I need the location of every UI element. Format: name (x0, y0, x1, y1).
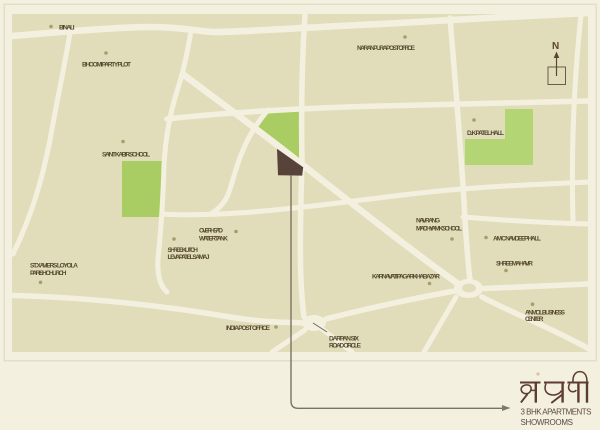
svg-text:OVERHEAD: OVERHEAD (199, 228, 223, 235)
svg-text:ROAD CIRCLE: ROAD CIRCLE (329, 343, 362, 350)
svg-text:NARANPURA POST OFFICE: NARANPURA POST OFFICE (357, 45, 416, 52)
svg-text:ST. XAVIERS LOYOLA: ST. XAVIERS LOYOLA (30, 263, 78, 270)
svg-text:INDIA POST OFFICE: INDIA POST OFFICE (226, 325, 271, 332)
svg-text:BHOOMI PARTY PLOT: BHOOMI PARTY PLOT (82, 62, 131, 69)
svg-text:NAVRANG: NAVRANG (416, 218, 440, 225)
svg-text:PARISH CHURCH: PARISH CHURCH (30, 270, 67, 277)
svg-text:BINALI: BINALI (59, 25, 75, 32)
svg-text:KARNAVATI PAGARKHA BAZAR: KARNAVATI PAGARKHA BAZAR (372, 274, 440, 281)
svg-text:LEVA PATEL SAMAJ: LEVA PATEL SAMAJ (168, 254, 210, 261)
svg-text:DARPAN SIX: DARPAN SIX (329, 336, 360, 343)
svg-text:SAINT KABIR SCHOOL: SAINT KABIR SCHOOL (102, 152, 150, 159)
svg-text:A M C NAVDEEP HALL: A M C NAVDEEP HALL (493, 236, 541, 243)
svg-text:3 BHK APARTMENTS: 3 BHK APARTMENTS (521, 408, 592, 417)
svg-text:MADHYAMIK SCHOOL: MADHYAMIK SCHOOL (416, 226, 462, 233)
svg-text:SHOWROOMS: SHOWROOMS (521, 418, 574, 427)
svg-text:SHREE KUTCH: SHREE KUTCH (168, 247, 199, 254)
svg-text:N: N (552, 41, 559, 52)
svg-text:SHREE MAHAVIR: SHREE MAHAVIR (496, 261, 533, 268)
svg-text:WATER TANK: WATER TANK (199, 236, 228, 243)
svg-text:CENTER: CENTER (525, 316, 544, 323)
svg-text:D. K PATEL HALL: D. K PATEL HALL (467, 130, 504, 137)
